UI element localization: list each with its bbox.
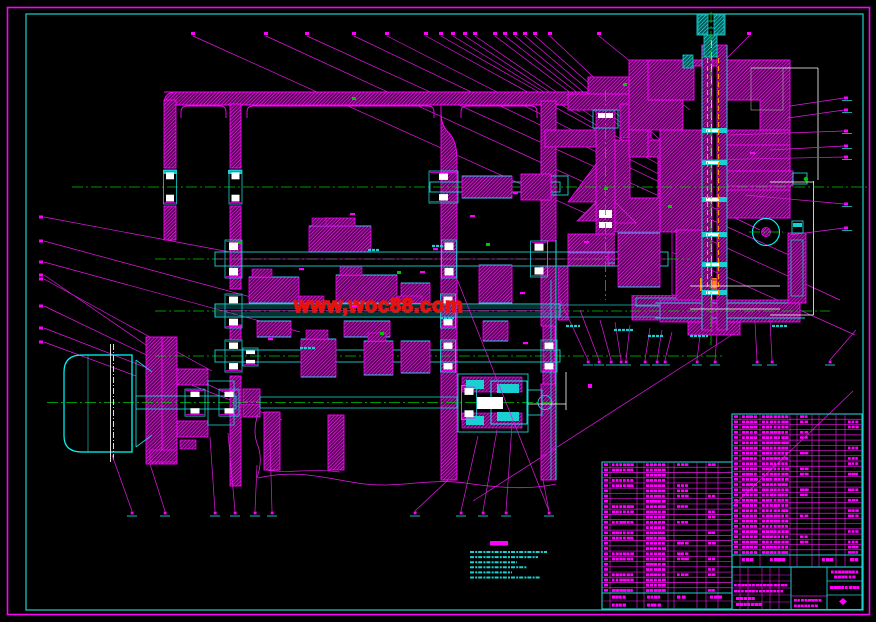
svg-text:www,woc88.com: www,woc88.com (293, 295, 464, 317)
